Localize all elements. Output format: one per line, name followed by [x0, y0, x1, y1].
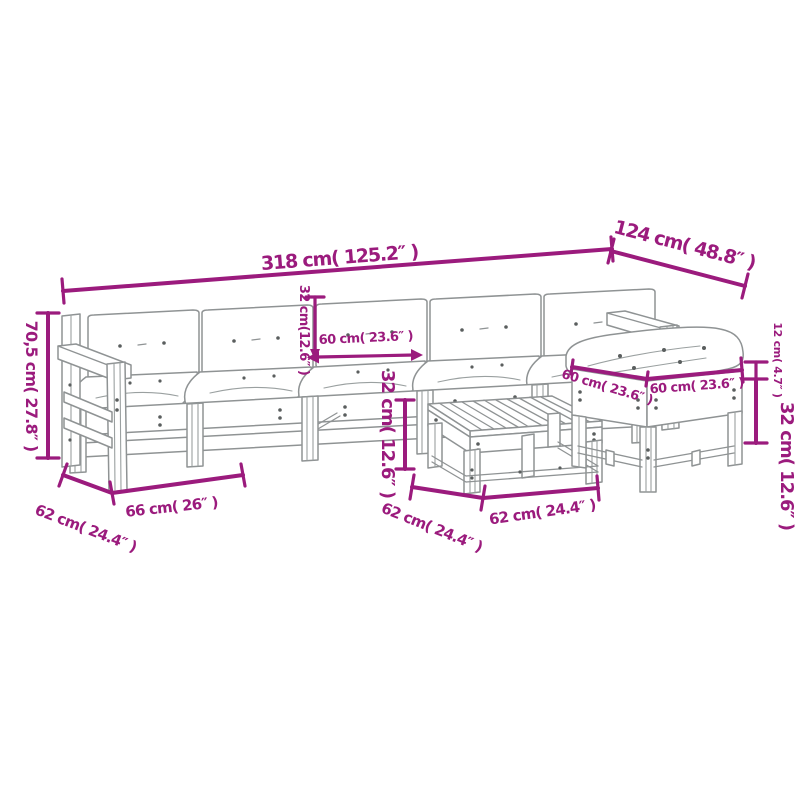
dim-stool-height: 32 cm( 12.6″ ) [745, 379, 797, 530]
dim-seat-module-width: 66 cm( 26″ ) [110, 464, 245, 521]
dim-back-cushion-height-label: 32 cm(12.6″ ) [296, 285, 311, 375]
dim-sofa-height: 70,5 cm( 27.8″ ) [22, 313, 59, 458]
dim-sofa-depth: 124 cm( 48.8″ ) [608, 216, 758, 298]
dim-seat-module-width-label: 66 cm( 26″ ) [124, 493, 218, 521]
dim-sofa-depth-label: 124 cm( 48.8″ ) [611, 216, 758, 274]
dim-stool-cushion-thickness-label: 12 cm( 4.7″ ) [771, 322, 784, 398]
dim-sofa-width: 318 cm( 125.2″ ) [62, 237, 613, 303]
product-dimension-diagram: 318 cm( 125.2″ ) 124 cm( 48.8″ ) 70,5 cm… [0, 0, 800, 800]
dim-table-width: 62 cm( 24.4″ ) [483, 476, 599, 528]
dim-table-width-label: 62 cm( 24.4″ ) [488, 496, 597, 529]
diagram-canvas: 318 cm( 125.2″ ) 124 cm( 48.8″ ) 70,5 cm… [0, 0, 800, 800]
dim-stool-cushion-thickness: 12 cm( 4.7″ ) [745, 322, 784, 398]
dim-armrest-depth-label: 62 cm( 24.4″ ) [32, 501, 139, 556]
dim-stool-height-label: 32 cm( 12.6″ ) [776, 402, 797, 530]
dim-table-height-label: 32 cm( 12.6″ ) [377, 370, 398, 498]
dim-table-depth-label: 62 cm( 24.4″ ) [379, 499, 485, 556]
dim-sofa-height-label: 70,5 cm( 27.8″ ) [22, 321, 41, 452]
